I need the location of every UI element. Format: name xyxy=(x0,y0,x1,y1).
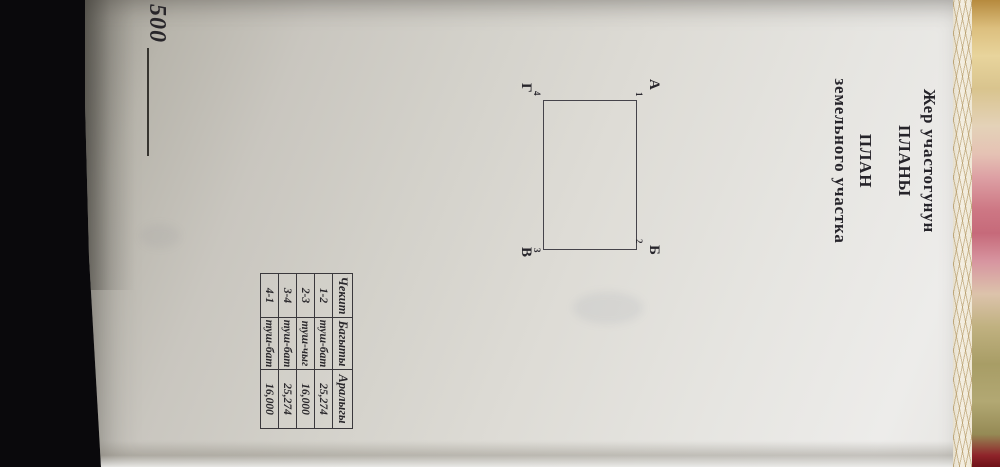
cell-direction: туш-бат xyxy=(315,318,333,370)
cell-direction: туш-бат xyxy=(279,318,297,370)
cell-distance: 16,000 xyxy=(297,370,315,429)
title-line-plan: ПЛАН xyxy=(853,8,878,314)
fabric-background xyxy=(969,0,1000,467)
header-bagyty: Багыты xyxy=(333,318,353,370)
header-chekit: Чекит xyxy=(333,274,353,318)
corner-number-1: 1 xyxy=(634,92,644,97)
cell-distance: 16,000 xyxy=(261,370,279,429)
document-content: Жер участогунун ПЛАНЫ ПЛАН земельного уч… xyxy=(85,0,958,467)
cell-direction: туш-чыг xyxy=(297,318,315,370)
cell-segment: 3-4 xyxy=(279,274,297,318)
table-header-row: Чекит Багыты Аралыгы xyxy=(333,274,353,429)
cell-segment: 2-3 xyxy=(297,274,315,318)
corner-label-b: Б xyxy=(645,245,662,255)
photo-scene: Жер участогунун ПЛАНЫ ПЛАН земельного уч… xyxy=(0,0,1000,467)
cell-segment: 4-1 xyxy=(261,274,279,318)
table-row: 2-3 туш-чыг 16,000 xyxy=(297,274,315,429)
corner-number-3: 3 xyxy=(532,248,542,253)
table-row: 1-2 туш-бат 25,274 xyxy=(315,274,333,429)
title-line-plany: ПЛАНЫ xyxy=(892,8,917,314)
table-row: 3-4 туш-бат 25,274 xyxy=(279,274,297,429)
corner-label-a: А xyxy=(645,79,662,90)
measurements-table: Чекит Багыты Аралыгы 1-2 туш-бат 25,274 … xyxy=(260,273,353,429)
corner-number-4: 4 xyxy=(532,91,542,96)
scale-underline xyxy=(147,48,149,156)
cell-distance: 25,274 xyxy=(315,370,333,429)
cell-distance: 25,274 xyxy=(279,370,297,429)
title-line-kyrgyz: Жер участогунун xyxy=(917,8,942,314)
cell-segment: 1-2 xyxy=(315,274,333,318)
table-row: 4-1 туш-бат 16,000 xyxy=(261,274,279,429)
title-line-russian: земельного участка xyxy=(828,8,853,314)
scale-block: 500 xyxy=(144,4,170,156)
scale-value: 500 xyxy=(144,4,170,43)
cell-direction: туш-бат xyxy=(261,318,279,370)
corner-number-2: 2 xyxy=(634,239,644,244)
document-title: Жер участогунун ПЛАНЫ ПЛАН земельного уч… xyxy=(828,8,942,314)
plot-rectangle xyxy=(543,100,637,250)
header-aralygy: Аралыгы xyxy=(333,370,353,429)
